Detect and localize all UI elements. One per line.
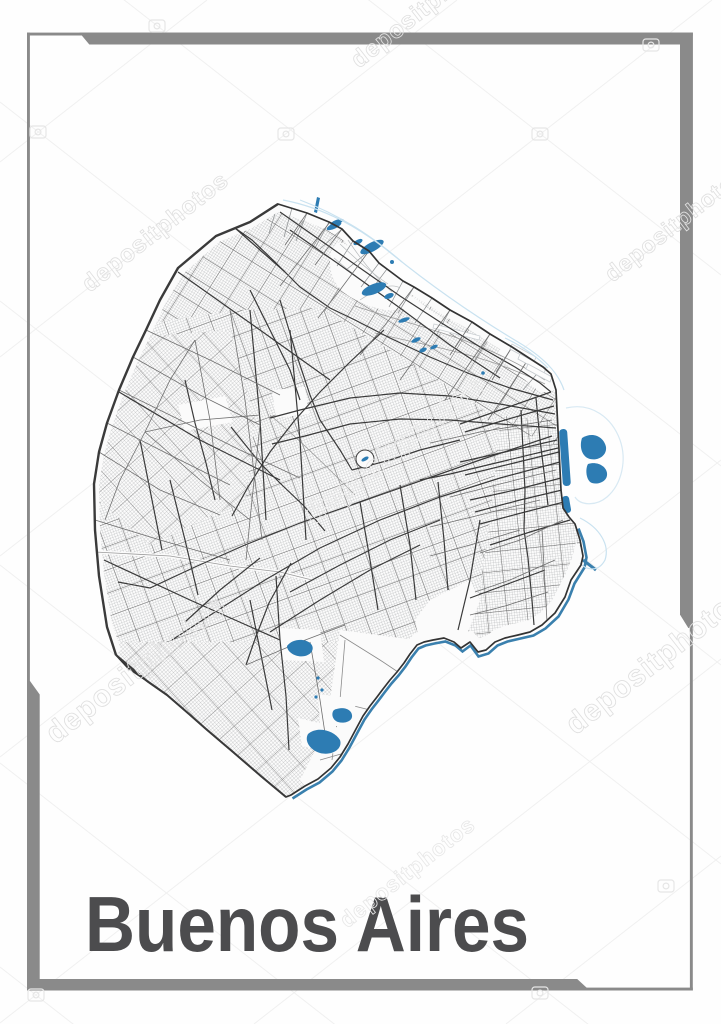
svg-text:Buenos Aires: Buenos Aires — [85, 880, 529, 968]
